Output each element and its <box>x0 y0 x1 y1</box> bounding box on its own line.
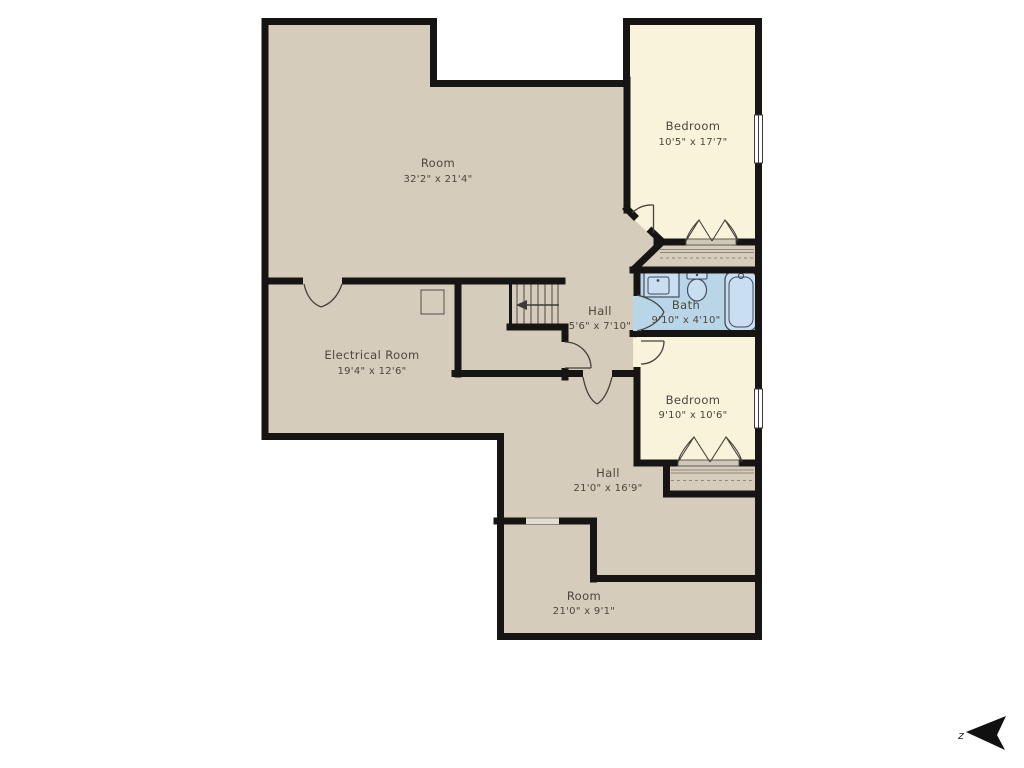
toilet <box>687 271 707 301</box>
floor-plan-drawing: Room 32'2" x 21'4" Bedroom 10'5" x 17'7"… <box>0 0 1024 768</box>
room-dims: 19'4" x 12'6" <box>337 366 406 377</box>
room-dims: 9'10" x 10'6" <box>658 410 727 421</box>
room-name: Bedroom <box>666 393 721 407</box>
room-dims: 10'5" x 17'7" <box>658 137 727 148</box>
north-arrow-icon <box>966 716 1006 750</box>
open-doorway <box>526 518 559 526</box>
floor-plan-page: Room 32'2" x 21'4" Bedroom 10'5" x 17'7"… <box>0 0 1024 768</box>
room-dims: 5'6" x 7'10" <box>569 321 631 332</box>
sink-vanity <box>644 272 679 297</box>
room-name: Hall <box>588 304 612 318</box>
room-dims: 21'0" x 9'1" <box>553 606 615 617</box>
window <box>755 389 763 428</box>
room-name: Room <box>421 156 455 170</box>
room-name: Bedroom <box>666 119 721 133</box>
room-dims: 21'0" x 16'9" <box>573 483 642 494</box>
room-name: Electrical Room <box>324 348 419 362</box>
room-name: Room <box>567 589 601 603</box>
north-arrow: z <box>957 716 1006 750</box>
room-name: Bath <box>672 298 700 312</box>
compass-label: z <box>957 729 964 742</box>
room-name: Hall <box>596 466 620 480</box>
bathtub <box>725 271 757 331</box>
room-dims: 9'10" x 4'10" <box>651 315 720 326</box>
room-dims: 32'2" x 21'4" <box>403 174 472 185</box>
window <box>755 115 763 163</box>
